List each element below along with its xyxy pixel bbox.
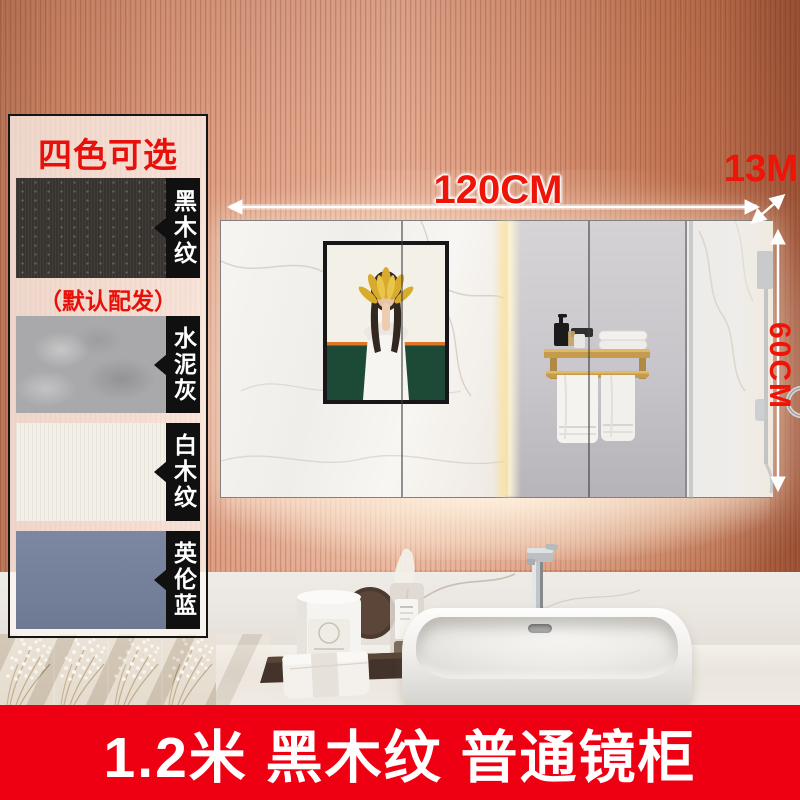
swatch-texture-black-wood <box>16 178 166 278</box>
soap-dispenser <box>554 323 569 346</box>
flower-strip <box>0 634 216 705</box>
swatch-label-tag: 水泥灰 <box>166 316 200 413</box>
swatch-white-wood[interactable]: 白木纹 <box>16 423 200 521</box>
swatch-label: 白木纹 <box>172 433 195 511</box>
product-image: 四色可选 黑木纹 （默认配发） 水泥灰 白木纹 英伦蓝 <box>0 0 800 800</box>
door-seam <box>401 221 403 497</box>
width-label: 120CM <box>428 170 568 210</box>
panel-title: 四色可选 <box>10 128 206 177</box>
default-ship-note: （默认配发） <box>10 282 206 316</box>
mirror-cabinet <box>220 220 772 498</box>
swatch-texture-british-blue <box>16 531 166 629</box>
faucet <box>518 544 562 616</box>
swatch-british-blue[interactable]: 英伦蓝 <box>16 531 200 629</box>
product-banner: 1.2米 黑木纹 普通镜柜 <box>0 705 800 800</box>
swatch-label: 水泥灰 <box>172 326 195 404</box>
artwork-reflection <box>323 241 449 404</box>
led-light-leak <box>493 221 521 497</box>
color-options-panel: 四色可选 黑木纹 （默认配发） 水泥灰 白木纹 英伦蓝 <box>8 114 208 638</box>
height-label: 60CM <box>764 322 794 482</box>
swatch-cement-gray[interactable]: 水泥灰 <box>16 316 200 413</box>
depth-label: 13M <box>722 150 800 188</box>
hanging-towels <box>557 375 635 443</box>
swatch-black-wood[interactable]: 黑木纹 <box>16 178 200 278</box>
swatch-label: 英伦蓝 <box>172 541 195 619</box>
vessel-sink <box>402 608 692 705</box>
shelf-and-towels <box>541 309 651 449</box>
swatch-label-tag: 白木纹 <box>166 423 200 521</box>
soap-box <box>282 651 370 699</box>
door-seam <box>685 221 687 497</box>
swatch-label-tag: 英伦蓝 <box>166 531 200 629</box>
flower-strip-shadow <box>0 634 216 705</box>
swatch-texture-cement-gray <box>16 316 166 413</box>
swatch-label: 黑木纹 <box>172 189 195 267</box>
overflow-hole <box>528 624 552 633</box>
folded-towels <box>599 331 647 350</box>
shower-reflection <box>685 221 773 499</box>
banner-text: 1.2米 黑木纹 普通镜柜 <box>104 712 697 794</box>
swatch-texture-white-wood <box>16 423 166 521</box>
swatch-label-tag: 黑木纹 <box>166 178 200 278</box>
door-seam <box>588 221 590 497</box>
